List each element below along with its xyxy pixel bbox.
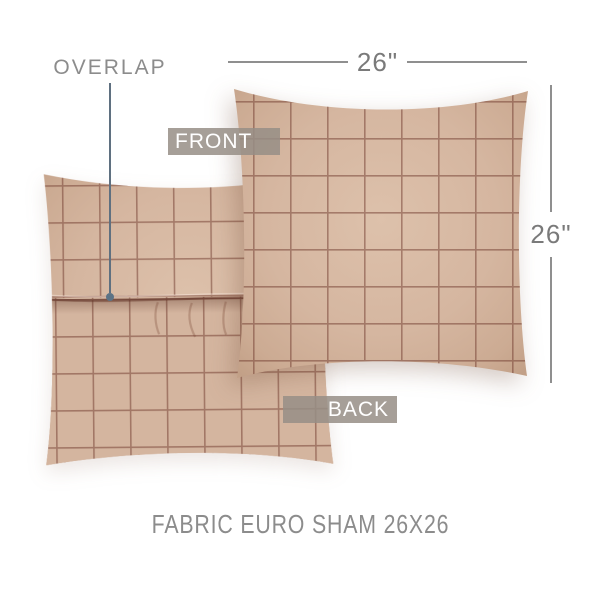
overlap-leader-line bbox=[109, 83, 111, 293]
dimension-line-right bbox=[407, 61, 527, 63]
product-caption-text: FABRIC EURO SHAM 26X26 bbox=[151, 509, 449, 540]
dimension-line-left bbox=[228, 61, 348, 63]
product-caption: FABRIC EURO SHAM 26X26 bbox=[0, 509, 600, 543]
dimension-line-bottom bbox=[550, 257, 552, 384]
height-dimension-value: 26" bbox=[530, 219, 571, 250]
height-dimension: 26" bbox=[529, 85, 573, 383]
overlap-leader-dot bbox=[106, 293, 114, 301]
width-dimension: 26" bbox=[228, 46, 527, 78]
front-view-tag: FRONT bbox=[168, 128, 280, 155]
overlap-label: OVERLAP bbox=[53, 56, 166, 80]
dimension-line-top bbox=[550, 85, 552, 212]
product-image-canvas: OVERLAP 26" 26" FRONT BACK FABRIC EURO S… bbox=[0, 0, 600, 600]
width-dimension-value: 26" bbox=[357, 47, 398, 78]
back-view-tag: BACK bbox=[283, 396, 397, 423]
